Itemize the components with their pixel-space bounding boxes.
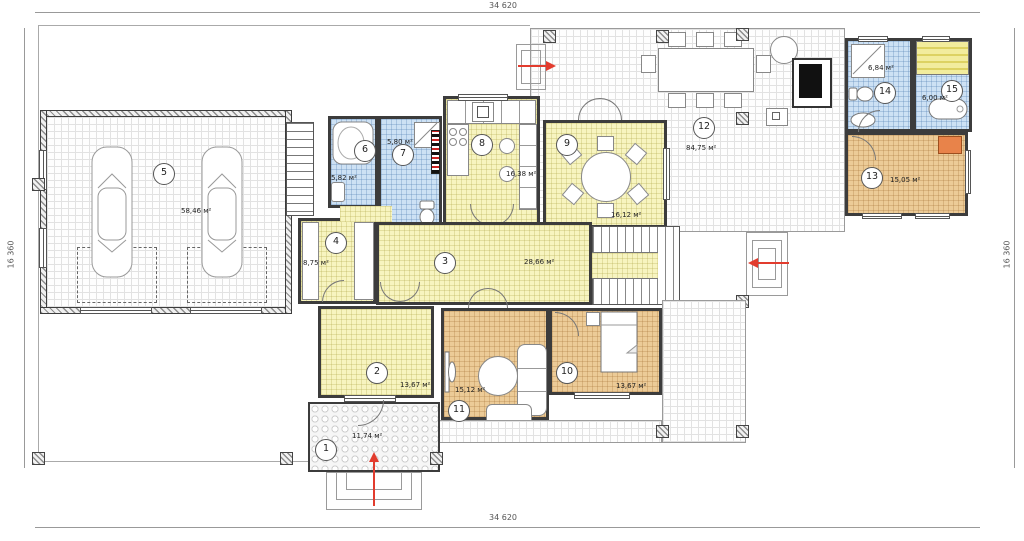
room-13-area: 15,05 м² xyxy=(890,176,920,184)
dining-table xyxy=(581,152,631,202)
dimension-bottom-label: 34 620 xyxy=(486,513,520,522)
room-8-number: 8 xyxy=(471,134,493,156)
room-13-number: 13 xyxy=(861,167,883,189)
sauna-bench xyxy=(916,41,969,75)
terrace-chair xyxy=(641,55,656,73)
terrace-table xyxy=(658,48,754,92)
room-1-number: 1 xyxy=(315,439,337,461)
terrace-chair xyxy=(696,32,714,47)
room-10-number: 10 xyxy=(556,362,578,384)
terrace-chair xyxy=(696,93,714,108)
column xyxy=(656,30,669,43)
room-9-area: 16,12 м² xyxy=(611,211,641,219)
room-3-area: 28,66 м² xyxy=(524,258,554,266)
garage-door xyxy=(80,307,152,314)
rear-terrace xyxy=(662,300,746,443)
room-15-area: 6,00 м² xyxy=(922,94,948,102)
window xyxy=(922,36,950,42)
room-9-number: 9 xyxy=(556,134,578,156)
dimension-line-bottom xyxy=(35,527,980,528)
garage-wall-left xyxy=(40,110,47,314)
column xyxy=(736,112,749,125)
main-entrance-arrow xyxy=(373,458,375,506)
room-12-area: 84,75 м² xyxy=(686,144,716,152)
column xyxy=(736,28,749,41)
kitchen-counter-right xyxy=(519,124,537,210)
dining-chair xyxy=(597,136,614,151)
heater-stove xyxy=(938,136,962,154)
bedroom-window xyxy=(574,392,630,399)
terrace-sink-basin xyxy=(772,112,780,120)
column xyxy=(280,452,293,465)
dimension-line-top xyxy=(35,12,980,13)
room-14-number: 14 xyxy=(874,82,896,104)
burner xyxy=(449,128,457,136)
stairs-entry xyxy=(592,252,658,279)
room-12-number: 12 xyxy=(693,117,715,139)
terrace-chair xyxy=(756,55,771,73)
sink-bowl xyxy=(499,138,515,154)
room-1-area: 11,74 м² xyxy=(352,432,382,440)
terrace-chair xyxy=(724,93,742,108)
room-10-area: 13,67 м² xyxy=(616,382,646,390)
column xyxy=(32,178,45,191)
room-5-area: 58,46 м² xyxy=(181,207,211,215)
window xyxy=(915,213,950,219)
window xyxy=(965,150,971,194)
dimension-line-left xyxy=(24,28,25,468)
dimension-left-label: 16 360 xyxy=(7,238,16,272)
room-7-number: 7 xyxy=(392,144,414,166)
rear-terrace-strip xyxy=(434,420,662,443)
wall-section-mark xyxy=(431,130,440,174)
room-6-area: 5,82 м² xyxy=(331,174,357,182)
bed-icon xyxy=(600,311,638,373)
kitchen-window xyxy=(458,94,508,101)
column xyxy=(543,30,556,43)
toilet-icon xyxy=(848,84,874,102)
burner xyxy=(459,138,467,146)
room-6-number: 6 xyxy=(354,140,376,162)
room-14-area: 6,84 м² xyxy=(868,64,894,72)
garage-wall-top xyxy=(40,110,292,117)
dining-window xyxy=(663,148,670,200)
side-steps xyxy=(758,248,776,280)
room-4-number: 4 xyxy=(325,232,347,254)
garage-door xyxy=(190,307,262,314)
room-11-area: 15,12 м² xyxy=(455,386,485,394)
room-7-area: 5,80 м² xyxy=(387,138,413,146)
dimension-line-right xyxy=(1014,28,1015,468)
column xyxy=(656,425,669,438)
room-5-number: 5 xyxy=(153,163,175,185)
window xyxy=(862,213,902,219)
room-2-number: 2 xyxy=(366,362,388,384)
burner xyxy=(459,128,467,136)
car-icon xyxy=(88,142,136,282)
column xyxy=(430,452,443,465)
hall-arm xyxy=(340,206,392,222)
floor-plan: 34 620 34 620 16 360 16 360 × × xyxy=(0,0,1024,541)
dimension-top-label: 34 620 xyxy=(486,1,520,10)
site-boundary-top xyxy=(38,25,530,26)
room-11-number: 11 xyxy=(448,400,470,422)
terrace-chair xyxy=(668,93,686,108)
secondary-stairs xyxy=(286,122,314,216)
side-entrance-arrow-head xyxy=(748,258,758,268)
sink-icon xyxy=(331,182,345,202)
terrace-entrance-arrow-head xyxy=(546,61,556,71)
window xyxy=(858,36,888,42)
stove-inner xyxy=(477,106,489,118)
room-2-area: 13,67 м² xyxy=(400,381,430,389)
column xyxy=(736,425,749,438)
room-3-number: 3 xyxy=(434,252,456,274)
column xyxy=(32,452,45,465)
main-entrance-arrow-head xyxy=(369,452,379,462)
nightstand xyxy=(586,312,600,326)
terrace-chair xyxy=(668,32,686,47)
terrace-entrance-arrow xyxy=(518,65,546,67)
dimension-right-label: 16 360 xyxy=(1003,238,1012,272)
side-entrance-arrow xyxy=(755,262,789,264)
room-4-area: 8,75 м² xyxy=(303,259,329,267)
terrace-steps xyxy=(521,50,541,84)
wardrobe-shelf xyxy=(354,222,374,300)
bbq-firebox xyxy=(799,64,822,98)
room-8-area: 16,38 м² xyxy=(506,170,536,178)
garage-window xyxy=(39,228,47,268)
burner xyxy=(449,138,457,146)
